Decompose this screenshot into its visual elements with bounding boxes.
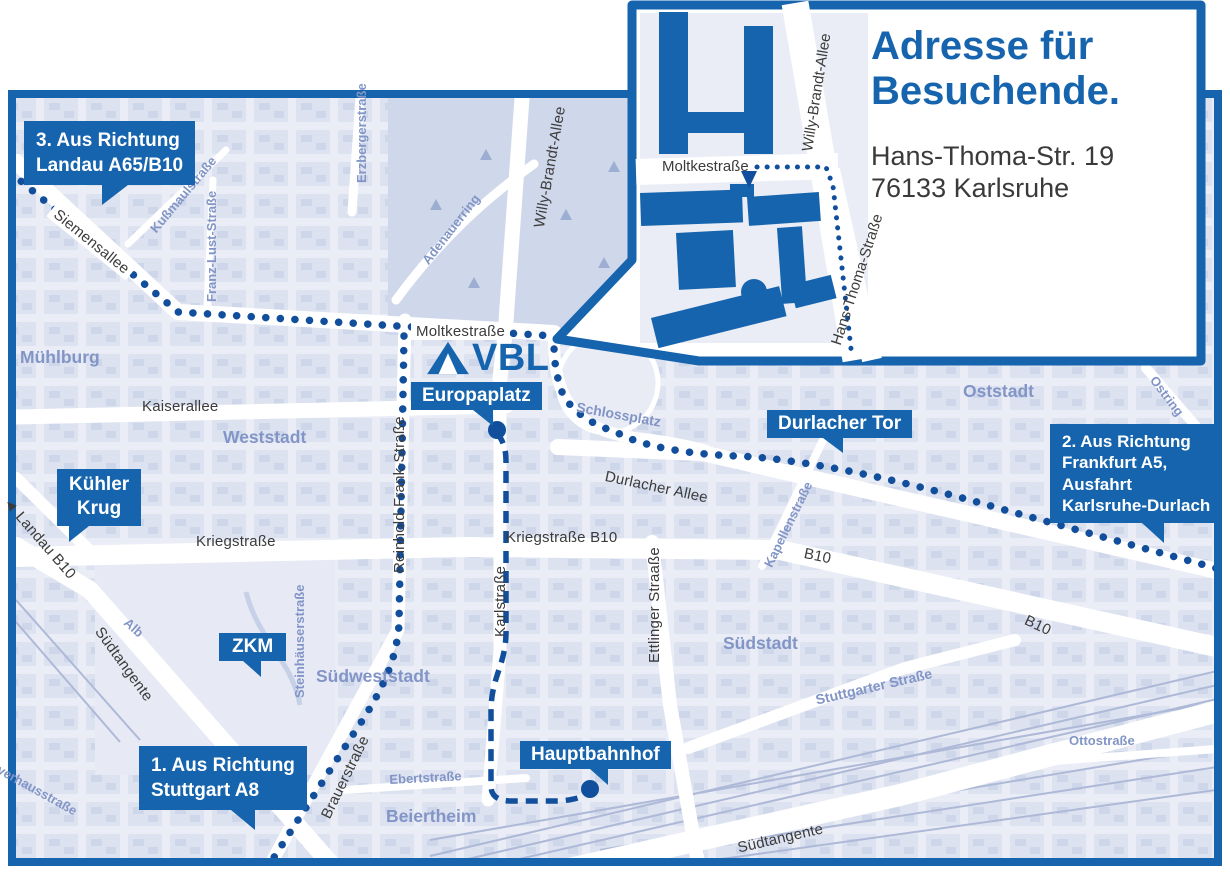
road-label-brauerstrasse: Brauerstraße (318, 733, 373, 821)
callout-pointer (590, 769, 608, 785)
callout-route-1: 1. Aus Richtung Stuttgart A8 (139, 746, 307, 810)
badge-kuehler-krug-line2: Krug (69, 497, 129, 521)
callout-pointer (823, 438, 843, 453)
road-label-siemensallee: Siemensallee (46, 203, 136, 281)
road-label-stuttgarter-strasse: Stuttgarter Straße (814, 665, 934, 707)
road-label-suedtangente-south: Südtangente (736, 820, 825, 856)
road-label-durlacher-allee: Durlacher Allee (603, 468, 709, 506)
callout-route-1-line1: 1. Aus Richtung (151, 753, 295, 778)
badge-zkm-label: ZKM (232, 636, 273, 657)
callout-route-2-line1: 2. Aus Richtung (1062, 431, 1210, 452)
vbl-triangle-icon (426, 340, 470, 376)
road-label-b10-west: B10 (802, 545, 832, 567)
callout-route-3-line2: Landau A65/B10 (36, 153, 183, 178)
vbl-logo: VBL (426, 340, 550, 376)
road-label-kriegstrasse: Kriegstraße (196, 533, 276, 550)
river-label-alb: Alb (121, 615, 147, 640)
badge-europaplatz: Europaplatz (411, 382, 542, 410)
place-label-schlossplatz2: Schlossplatz (575, 399, 662, 430)
vbl-logo-text: VBL (472, 340, 550, 376)
road-label-ebertstrasse: Ebertstraße (389, 768, 462, 787)
callout-pointer (231, 810, 255, 830)
district-label-oststadt: Oststadt (963, 381, 1034, 402)
callout-pointer (1142, 523, 1164, 543)
badge-kuehler-krug: Kühler Krug (57, 469, 141, 526)
badge-kuehler-krug-line1: Kühler (69, 473, 129, 497)
schlossplatz-text: Schlossplatz (575, 399, 662, 430)
district-label-weststadt: Weststadt (223, 427, 306, 448)
badge-zkm: ZKM (219, 633, 286, 661)
district-label-suedweststadt: Südweststadt (316, 666, 430, 687)
district-label-suedstadt: Südstadt (723, 633, 798, 654)
district-label-beiertheim: Beiertheim (386, 806, 476, 827)
road-label-franz-lust-strasse: Franz-Lust-Straße (204, 191, 219, 302)
road-label-b10-east: B10 (1022, 612, 1054, 639)
callout-pointer (243, 661, 261, 677)
callout-route-3-line1: 3. Aus Richtung (36, 128, 183, 153)
road-label-ettlinger-strasse: Ettlinger Straaße (646, 547, 663, 663)
road-label-kriegstrasse-b10: Kriegstraße B10 (506, 529, 617, 546)
road-label-pulverhausstrasse: verhausstraße (0, 762, 80, 818)
callout-route-2-line3: Ausfahrt (1062, 474, 1210, 495)
visitor-map-page: Siemensallee Moltkestraße Kaiserallee Kr… (0, 0, 1230, 874)
callout-pointer (69, 526, 89, 542)
callout-pointer (473, 410, 493, 426)
road-label-reinhold-frank-strasse: Reinhold-Frank-Straße (391, 416, 408, 573)
badge-hauptbahnhof-label: Hauptbahnhof (531, 744, 660, 765)
road-label-suedtangente-west: Südtangente (91, 624, 156, 705)
callout-route-2-line2: Frankfurt A5, (1062, 452, 1210, 473)
road-label-ottostrasse: Ottostraße (1069, 733, 1135, 748)
badge-europaplatz-label: Europaplatz (422, 385, 531, 406)
road-label-adenauerring: Adenauerring (419, 191, 483, 267)
badge-durlacher-tor: Durlacher Tor (767, 410, 912, 438)
district-label-muehlburg: Mühlburg (20, 347, 100, 368)
road-label-ostring: Ostring (1147, 373, 1187, 419)
road-label-steinhaeuserstrasse: Steinhäuserstraße (292, 585, 307, 698)
callout-route-3: 3. Aus Richtung Landau A65/B10 (24, 121, 195, 185)
callout-route-1-line2: Stuttgart A8 (151, 778, 295, 803)
callout-route-2: 2. Aus Richtung Frankfurt A5, Ausfahrt K… (1050, 424, 1222, 523)
road-label-erzbergerstrasse: Erzbergerstraße (354, 83, 369, 183)
map-labels-layer: Siemensallee Moltkestraße Kaiserallee Kr… (0, 0, 1230, 874)
callout-route-2-line4: Karlsruhe-Durlach (1062, 495, 1210, 516)
road-label-karlstrasse: Karlstraße (492, 566, 509, 637)
badge-hauptbahnhof: Hauptbahnhof (520, 741, 671, 769)
callout-pointer (102, 185, 128, 205)
road-label-kaiserallee: Kaiserallee (142, 398, 218, 415)
road-label-willy-brandt-allee: Willy-Brandt-Allee (531, 105, 569, 229)
badge-durlacher-tor-label: Durlacher Tor (778, 413, 901, 434)
